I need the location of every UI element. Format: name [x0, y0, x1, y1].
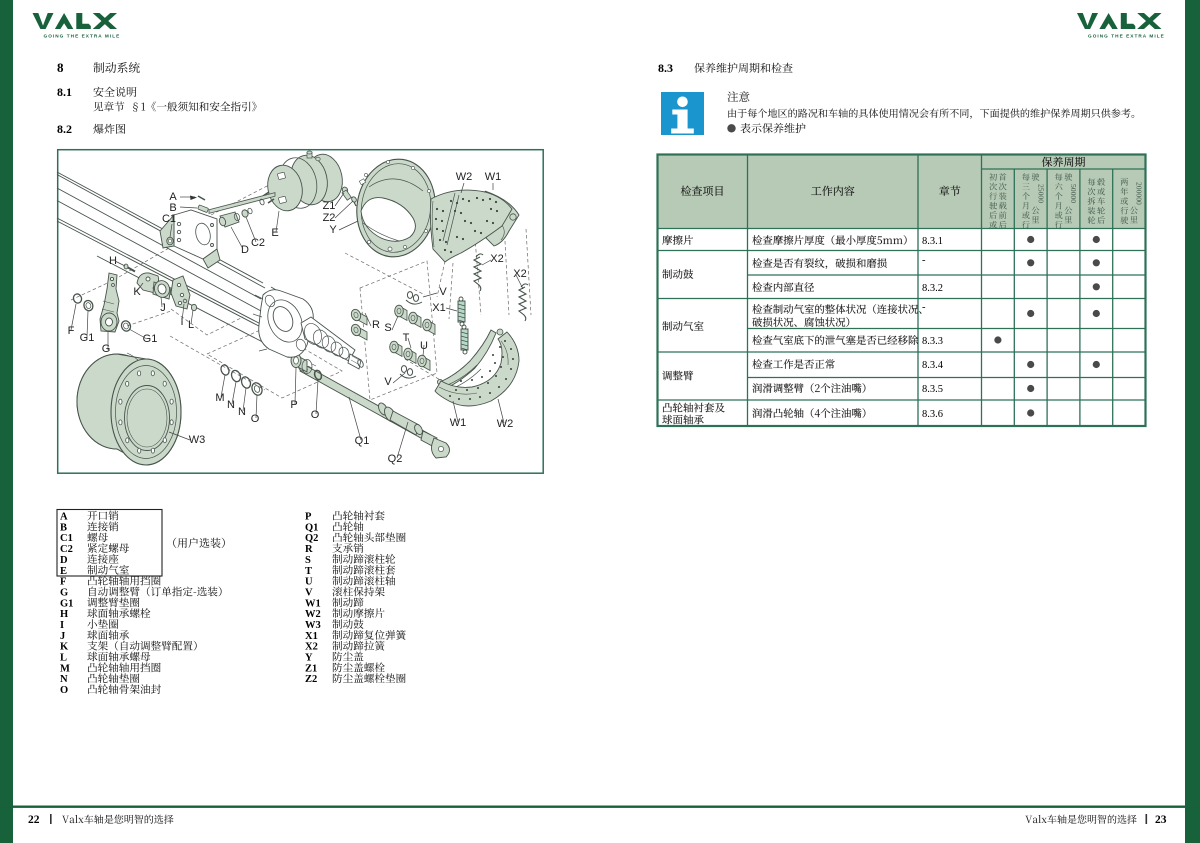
svg-text:H: H — [109, 255, 117, 267]
svg-text:Z2: Z2 — [305, 674, 317, 685]
svg-text:200000: 200000 — [1135, 182, 1144, 205]
svg-text:X2: X2 — [490, 253, 503, 265]
svg-text:C2: C2 — [251, 237, 265, 249]
svg-text:U: U — [305, 577, 313, 588]
svg-text:E: E — [60, 566, 67, 577]
svg-text:K: K — [133, 286, 141, 298]
svg-text:J: J — [60, 631, 65, 642]
svg-text:R: R — [305, 544, 313, 555]
svg-text:F: F — [68, 325, 75, 337]
svg-text:W1: W1 — [485, 171, 502, 183]
svg-text:N: N — [227, 399, 235, 411]
svg-text:M: M — [215, 392, 224, 404]
svg-text:8.3.6: 8.3.6 — [922, 409, 943, 420]
svg-text:22: 22 — [28, 814, 40, 826]
svg-text:B: B — [60, 522, 67, 533]
svg-text:8.3.3: 8.3.3 — [922, 336, 943, 347]
svg-text:R: R — [372, 319, 380, 331]
svg-text:8.3.2: 8.3.2 — [922, 283, 943, 294]
svg-text:P: P — [290, 399, 297, 411]
svg-text:G1: G1 — [60, 598, 73, 609]
svg-text:S: S — [384, 322, 391, 334]
svg-text:Z2: Z2 — [323, 212, 336, 224]
svg-text:8: 8 — [57, 60, 64, 75]
svg-text:8.3.5: 8.3.5 — [922, 384, 943, 395]
svg-text:G: G — [60, 588, 68, 599]
svg-text:L: L — [188, 319, 194, 331]
svg-text:-: - — [922, 255, 926, 266]
svg-text:I: I — [180, 316, 183, 328]
svg-text:Q2: Q2 — [388, 453, 403, 465]
svg-text:X1: X1 — [432, 302, 445, 314]
svg-text:C1: C1 — [60, 533, 73, 544]
svg-text:Z1: Z1 — [305, 663, 317, 674]
svg-text:-: - — [922, 302, 926, 313]
svg-text:V: V — [305, 588, 313, 599]
svg-text:D: D — [60, 555, 68, 566]
svg-text:W2: W2 — [497, 418, 514, 430]
svg-text:25000: 25000 — [1036, 184, 1045, 203]
svg-text:W3: W3 — [305, 620, 321, 631]
svg-text:H: H — [60, 609, 68, 620]
svg-text:23: 23 — [1155, 814, 1167, 826]
svg-text:Q1: Q1 — [305, 522, 318, 533]
svg-text:W2: W2 — [456, 171, 473, 183]
svg-text:8.3.1: 8.3.1 — [922, 236, 943, 247]
svg-text:Y: Y — [329, 224, 337, 236]
svg-text:G: G — [102, 343, 111, 355]
svg-text:X2: X2 — [513, 268, 526, 280]
svg-text:Q2: Q2 — [305, 533, 318, 544]
svg-text:N: N — [60, 674, 68, 685]
svg-text:L: L — [60, 653, 67, 664]
svg-text:C1: C1 — [162, 213, 176, 225]
svg-text:X2: X2 — [305, 642, 318, 653]
svg-text:J: J — [160, 302, 166, 314]
svg-text:W1: W1 — [450, 417, 467, 429]
svg-text:W1: W1 — [305, 598, 321, 609]
svg-text:G1: G1 — [143, 333, 158, 345]
svg-text:8.1: 8.1 — [57, 85, 72, 99]
svg-text:Z1: Z1 — [323, 200, 336, 212]
svg-text:T: T — [305, 566, 312, 577]
svg-text:X1: X1 — [305, 631, 318, 642]
svg-text:8.3: 8.3 — [658, 61, 673, 75]
svg-text:Q1: Q1 — [355, 435, 370, 447]
svg-text:M: M — [60, 663, 70, 674]
svg-text:P: P — [305, 512, 312, 523]
svg-text:V: V — [439, 286, 447, 298]
svg-text:50000: 50000 — [1069, 184, 1078, 203]
svg-text:O: O — [251, 413, 260, 425]
svg-text:S: S — [305, 555, 311, 566]
svg-text:C2: C2 — [60, 544, 73, 555]
svg-text:O: O — [60, 685, 68, 696]
svg-text:O: O — [311, 409, 320, 421]
svg-text:A: A — [60, 512, 68, 523]
svg-text:I: I — [60, 620, 64, 631]
svg-text:8.2: 8.2 — [57, 122, 72, 136]
svg-text:W3: W3 — [189, 434, 206, 446]
svg-text:K: K — [60, 642, 69, 653]
svg-text:D: D — [241, 244, 249, 256]
svg-text:W2: W2 — [305, 609, 321, 620]
svg-text:F: F — [60, 577, 66, 588]
svg-text:8.3.4: 8.3.4 — [922, 360, 944, 371]
svg-text:N: N — [238, 406, 246, 418]
svg-text:V: V — [384, 376, 392, 388]
svg-text:T: T — [403, 332, 410, 344]
svg-text:Y: Y — [305, 653, 313, 664]
svg-text:E: E — [271, 227, 278, 239]
